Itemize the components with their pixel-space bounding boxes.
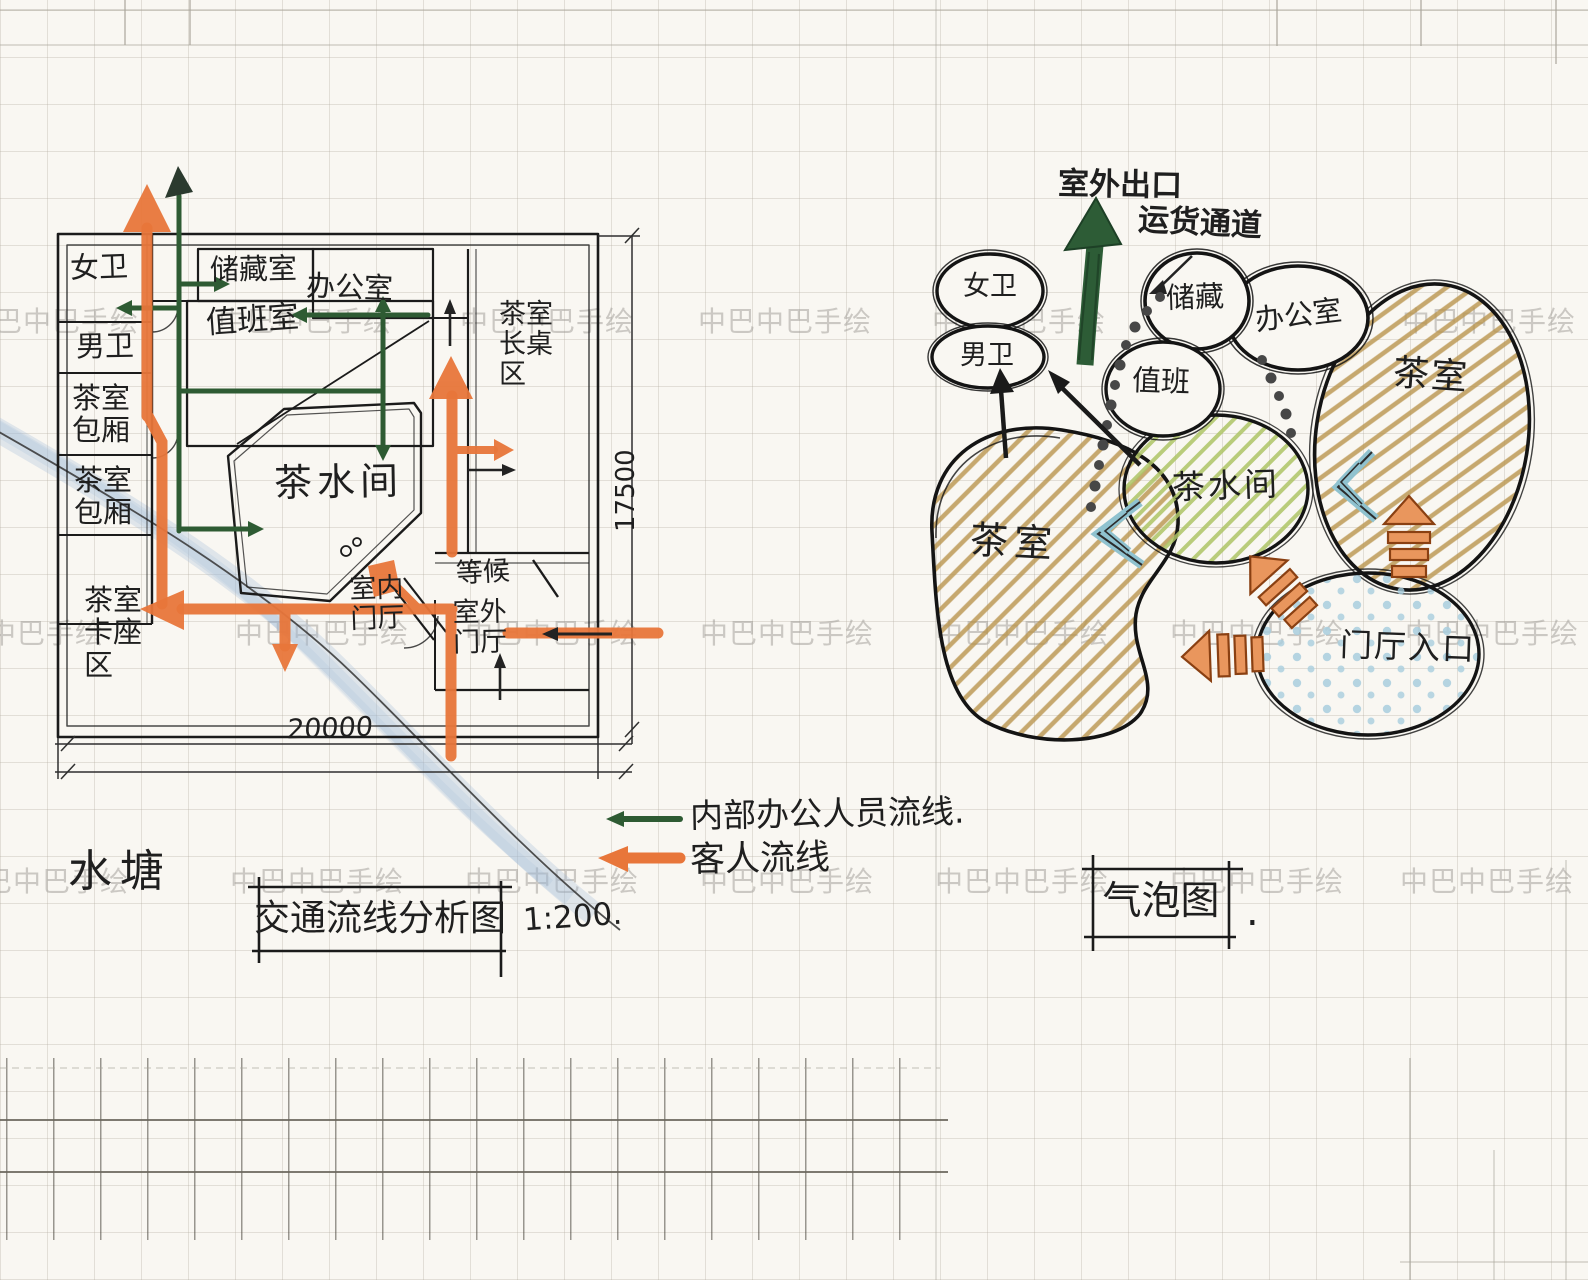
bubble-label-duty: 值班 xyxy=(1131,365,1190,399)
room-label-men-wc: 男卫 xyxy=(76,330,135,363)
dimension-right: 17500 xyxy=(612,449,641,532)
bubble-label-tea-room-left: 茶室 xyxy=(969,520,1059,566)
room-label-booth-area: 茶室卡座区 xyxy=(84,584,146,681)
bubble-title-period: . xyxy=(1246,890,1259,934)
room-label-private-room-2: 茶室包厢 xyxy=(74,464,136,529)
bubble-label-pantry: 茶水间 xyxy=(1171,466,1280,506)
legend-guest-label: 客人流线 xyxy=(690,839,831,880)
striped-arrow-left xyxy=(1181,629,1264,682)
plan-scale: 1:200. xyxy=(522,897,623,938)
dimension-bottom: 20000 xyxy=(286,712,374,745)
bubble-label-storage: 储藏 xyxy=(1165,281,1224,315)
bubble-label-outdoor-exit: 室外出口 xyxy=(1058,167,1183,203)
room-label-outdoor-foyer: 室外门厅 xyxy=(452,597,511,658)
bubble-label-women-wc: 女卫 xyxy=(963,272,1017,302)
bubble-label-men-wc: 男卫 xyxy=(960,341,1014,371)
room-label-waiting: 等候 xyxy=(455,557,510,589)
room-label-long-table: 茶室长桌区 xyxy=(499,300,557,391)
sketch-page: 中巴中巴手绘 中巴中巴手绘 中巴中巴手绘 中巴中巴手绘 中巴中巴手绘 中巴中巴手… xyxy=(0,0,1588,1280)
legend-staff-label: 内部办公人员流线. xyxy=(690,794,965,835)
bubble-title-box: 气泡图 xyxy=(1093,869,1229,935)
room-label-storage: 储藏室 xyxy=(210,253,298,286)
legend-arrows xyxy=(598,811,680,872)
bubble-label-entrance: 门厅入口 xyxy=(1339,628,1476,668)
room-label-duty: 值班室 xyxy=(205,300,300,340)
plan-title-box: 交通流线分析图 xyxy=(259,887,501,951)
bubble-label-tea-room-right: 茶室 xyxy=(1392,353,1471,398)
room-label-pantry: 茶水间 xyxy=(274,461,404,505)
bubble-title: 气泡图 xyxy=(1102,881,1219,924)
room-label-indoor-foyer: 室内门厅 xyxy=(349,573,409,635)
room-label-women-wc: 女卫 xyxy=(69,251,128,285)
pond-label: 水塘 xyxy=(68,848,172,896)
plan-title: 交通流线分析图 xyxy=(254,899,506,939)
room-label-office: 办公室 xyxy=(305,270,393,305)
room-label-private-room-1: 茶室包厢 xyxy=(72,382,134,447)
bubble-label-freight-passage: 运货通道 xyxy=(1137,203,1263,244)
